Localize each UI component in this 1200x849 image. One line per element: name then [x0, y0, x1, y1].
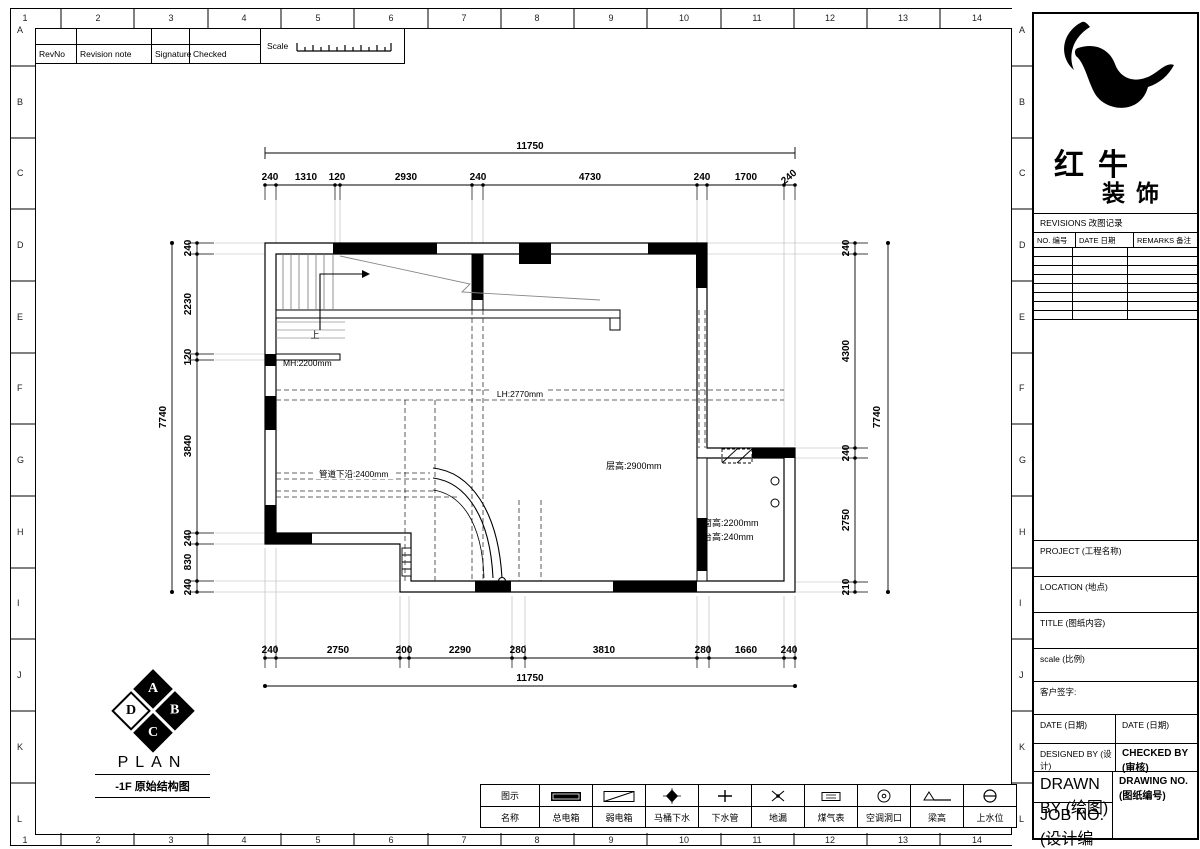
legend-item-label: 煤气表	[805, 807, 857, 827]
revisions-title: REVISIONS 改图记录	[1034, 213, 1197, 232]
dim-label: 2230	[183, 292, 194, 315]
plan-text-labels: MH:2200mm LH:2770mm 层高:2900mm 管道下沿:2400m…	[283, 358, 759, 542]
dim-label: 2290	[449, 645, 472, 656]
window-height-label: 窗高:2200mm	[703, 517, 759, 528]
designed-by-field: DESIGNED BY (设计)	[1034, 744, 1115, 771]
legend-item-label: 马桶下水	[646, 807, 698, 827]
legend-item: 马桶下水	[645, 785, 698, 827]
dim-label: 240	[779, 168, 799, 187]
legend-item: 总电箱	[539, 785, 592, 827]
scale-field: scale (比例)	[1034, 648, 1197, 681]
dim-label: 4300	[841, 339, 852, 362]
plan-stairs: 上	[276, 254, 600, 340]
dim-left: 240 2230 120 3840 240 830 240 7740	[158, 239, 214, 595]
diamond-letter: A	[147, 681, 157, 697]
location-field: LOCATION (地点)	[1034, 576, 1197, 612]
revisions-empty-row	[1034, 301, 1197, 310]
dim-label: 280	[510, 645, 527, 656]
legend-item: 梁高	[910, 785, 963, 827]
title-block-spacer	[1034, 319, 1197, 540]
dim-label: 2750	[841, 508, 852, 531]
revisions-empty-row	[1034, 274, 1197, 283]
low-voltage-box-icon	[599, 788, 639, 804]
dim-label: 1700	[735, 172, 758, 183]
main-power-box-icon	[546, 788, 586, 804]
dim-label: 120	[183, 348, 194, 365]
legend-item-label: 上水位	[964, 807, 1016, 827]
ac-opening-icon	[864, 788, 904, 804]
sill-height-label: 台高:240mm	[703, 531, 754, 542]
client-signature-field: 客户签字:	[1034, 681, 1197, 714]
diamond-letter: B	[170, 703, 179, 719]
dim-label: 240	[841, 444, 852, 461]
water-supply-icon	[970, 788, 1010, 804]
legend-item: 上水位	[963, 785, 1016, 827]
stair-up-label: 上	[310, 330, 319, 340]
dim-right: 240 4300 240 2750 210 7740	[841, 239, 890, 595]
gas-meter-icon	[811, 788, 851, 804]
checked-by-field: CHECKED BY (审核)	[1115, 744, 1197, 771]
dim-label: 240	[694, 172, 711, 183]
legend-header-icon-label: 图示	[481, 785, 539, 807]
dim-label: 240	[183, 578, 194, 595]
legend-item-label: 空调洞口	[858, 807, 910, 827]
legend-item-label: 地漏	[752, 807, 804, 827]
legend-item: 下水管	[698, 785, 751, 827]
door-height-label: MH:2200mm	[283, 358, 332, 368]
dim-label: 3840	[183, 434, 194, 457]
dim-label: 280	[695, 645, 712, 656]
drawing-no-field: DRAWING NO. (图纸编号)	[1112, 772, 1197, 838]
dim-label: 1310	[295, 172, 318, 183]
legend-item-label: 梁高	[911, 807, 963, 827]
dim-label: 240	[262, 172, 279, 183]
pipe-circle	[771, 477, 779, 485]
legend-header-col: 图示 名称	[481, 785, 539, 827]
designed-checked-row: DESIGNED BY (设计) CHECKED BY (审核)	[1034, 743, 1197, 771]
dim-label: 1660	[735, 645, 758, 656]
drain-pipe-icon	[705, 788, 745, 804]
beam-underside-label: LH:2770mm	[497, 389, 543, 399]
diamond-letter: C	[147, 725, 157, 741]
legend-item: 弱电箱	[592, 785, 645, 827]
toilet-drain-icon	[652, 788, 692, 804]
revisions-col-date: DATE 日期	[1075, 233, 1133, 247]
revisions-empty-row	[1034, 283, 1197, 292]
plan-stamp: A B D C PLAN -1F 原始结构图	[95, 682, 210, 798]
diamond-letter: D	[126, 703, 136, 719]
dim-total-top: 11750	[516, 141, 544, 152]
dim-total-right: 7740	[872, 405, 883, 428]
dim-label: 240	[841, 239, 852, 256]
dim-label: 240	[781, 645, 798, 656]
revisions-empty-row	[1034, 292, 1197, 301]
revisions-empty-row	[1034, 247, 1197, 256]
plan-ramp-curves	[433, 468, 506, 585]
date-left-field: DATE (日期)	[1034, 715, 1115, 743]
dim-label: 240	[183, 239, 194, 256]
title-field: TITLE (图纸内容)	[1034, 612, 1197, 648]
legend-item-label: 弱电箱	[593, 807, 645, 827]
revisions-header-row: NO. 编号 DATE 日期 REMARKS 备注	[1034, 232, 1197, 247]
legend-item-label: 总电箱	[540, 807, 592, 827]
project-field: PROJECT (工程名称)	[1034, 540, 1197, 576]
job-no-field: JOB NO. (设计编号)	[1034, 802, 1112, 849]
legend-header-name-label: 名称	[481, 807, 539, 827]
drawing-sheet: 1 2 3 4 5 6 7 8 9 10 11 12 13 14 1 2 3 4…	[0, 0, 1200, 849]
dim-label: 2930	[395, 172, 418, 183]
legend-item: 地漏	[751, 785, 804, 827]
legend-table: 图示 名称 总电箱 弱电箱 马桶下水 下水管 地漏 煤气表 空调洞	[480, 784, 1017, 828]
title-block: 红牛 装饰 REVISIONS 改图记录 NO. 编号 DATE 日期 REMA…	[1032, 12, 1199, 840]
brand-area: 红牛 装饰	[1034, 14, 1197, 213]
dim-top: 11750 240 1310 120 2930 240 4730 240 170…	[262, 141, 800, 200]
revisions-col-no: NO. 编号	[1034, 233, 1075, 247]
dim-label: 120	[329, 172, 346, 183]
revisions-empty-row	[1034, 256, 1197, 265]
floor-drain-icon	[758, 788, 798, 804]
brand-name-line2: 装饰	[1102, 174, 1170, 208]
legend-item: 空调洞口	[857, 785, 910, 827]
legend-item: 煤气表	[804, 785, 857, 827]
revisions-empty-row	[1034, 310, 1197, 319]
pipe-circle	[771, 499, 779, 507]
dim-bottom: 240 2750 200 2290 280 3810 280 1660 240 …	[262, 645, 798, 688]
beam-height-icon	[917, 788, 957, 804]
bull-logo	[1034, 14, 1197, 134]
drawn-job-row: DRAWN BY (绘图) JOB NO. (设计编号) DRAWING NO.…	[1034, 771, 1197, 838]
dim-total-bottom: 11750	[516, 673, 544, 684]
legend-item-label: 下水管	[699, 807, 751, 827]
date-row: DATE (日期) DATE (日期)	[1034, 714, 1197, 743]
revisions-empty-row	[1034, 265, 1197, 274]
dim-label: 3810	[593, 645, 616, 656]
dim-label: 2750	[327, 645, 350, 656]
abcd-diamond-logo: A B D C	[109, 669, 197, 757]
dim-label: 240	[183, 529, 194, 546]
floor-height-label: 层高:2900mm	[606, 460, 662, 471]
dim-label: 830	[183, 553, 194, 570]
revisions-col-remarks: REMARKS 备注	[1133, 233, 1197, 247]
dim-label: 240	[470, 172, 487, 183]
dim-label: 210	[841, 578, 852, 595]
date-right-field: DATE (日期)	[1115, 715, 1197, 743]
dim-label: 200	[396, 645, 413, 656]
dim-label: 240	[262, 645, 279, 656]
dim-label: 4730	[579, 172, 602, 183]
dim-total-left: 7740	[158, 405, 169, 428]
pipe-bottom-label: 管道下沿:2400mm	[319, 469, 388, 479]
drawn-by-field: DRAWN BY (绘图)	[1034, 772, 1112, 802]
plan-subtitle: -1F 原始结构图	[95, 775, 210, 798]
door-element	[402, 548, 411, 576]
